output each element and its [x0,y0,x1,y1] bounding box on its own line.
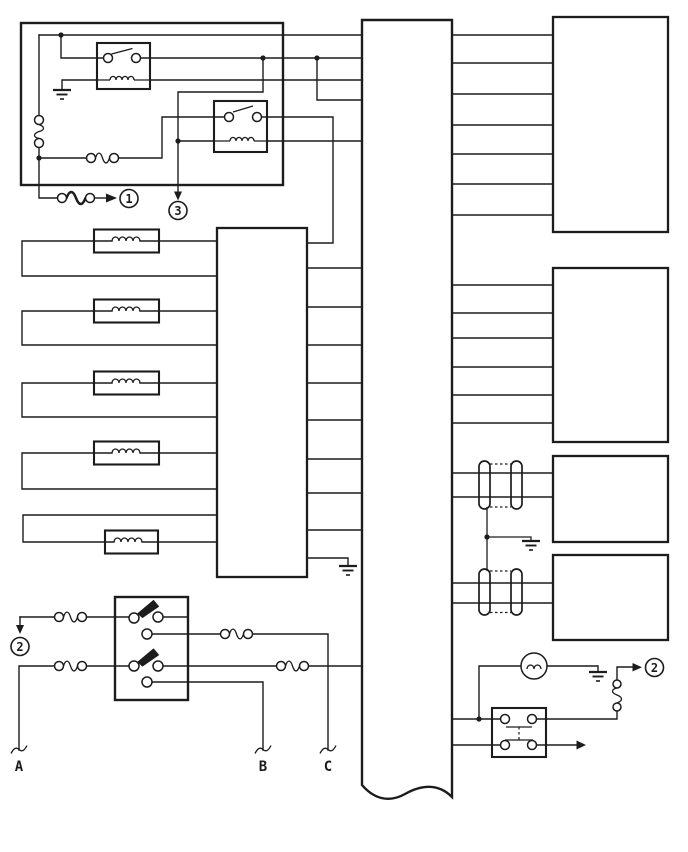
junction-dot [484,534,489,539]
connector-box-4 [553,555,668,640]
wire-fuse-to-relay2 [119,117,225,158]
relay-2-coil [230,137,254,141]
connector-box-2 [553,268,668,442]
ground-symbol-ecm [339,566,357,575]
connector-pin [501,715,510,724]
wire-relay1-coil-ground [62,80,97,90]
coil-winding [112,237,140,241]
ecm-to-harness-wires [307,268,362,530]
ground-symbol-lamp [589,672,607,681]
bar-to-box2-wires [452,285,553,423]
connector-box-1 [553,17,668,232]
switch-contact [142,629,152,639]
wire-relay2-output [262,117,334,243]
junction-dot [260,55,265,60]
ecm-box [217,228,307,577]
switch-contact [142,677,152,687]
terminal-label-c: C [324,759,332,775]
ref-2-left-badge: 2 [11,638,29,656]
relay-1-coil [110,76,134,80]
relay-1-contact [104,54,113,63]
ignition-coil-row-1 [22,230,217,277]
terminal-label-a: A [15,759,24,775]
shielded-cable-section [452,461,553,615]
wire-to-fusible-link-1 [39,148,58,199]
wire-branch-to-bar [317,58,362,100]
arrow-right-icon [633,663,643,672]
shield-capsule [511,461,522,509]
ignition-coil-row-4 [22,442,217,490]
relay-1-box [97,43,150,89]
ignition-coil-row-3 [22,372,217,418]
fusible-link-ref2 [613,680,622,711]
fuse-row3-right [277,661,309,671]
coil-winding [112,379,140,383]
diagnostic-section: 2 [452,653,664,757]
wiring-diagram-page: 1 3 [0,0,688,852]
relay-2-contact-blade [233,106,253,112]
junction-dot [36,155,41,160]
ecm-ground-wire [307,558,348,566]
wire-row4-to-b [152,682,263,750]
ref-2-right-label: 2 [651,661,658,675]
fusible-link-ref1 [58,192,118,204]
ref-2-right-badge: 2 [646,659,664,677]
arrow-right-icon [106,194,117,203]
relay-section: 1 3 [21,23,362,243]
terminal-label-b: B [259,759,267,775]
fuse-row3 [55,661,87,671]
connector-pin [528,741,537,750]
switch-contact [129,613,139,623]
junction-dot [58,32,63,37]
fuse-row1 [55,612,87,622]
relay-2 [214,101,267,152]
connector-pin [501,741,510,750]
ground-symbol-shield [522,541,540,550]
fuse-row2 [221,629,253,639]
ignition-coil-row-5 [23,515,217,554]
shield-capsule [479,461,490,509]
relay-2-box [214,101,267,152]
shield-capsule [479,569,490,615]
ignition-switch-wires [19,617,362,750]
relay-2-contact [225,113,234,122]
indicator-lamp [521,653,547,679]
fusible-link-vertical [35,116,44,148]
arrow-right-icon [577,741,587,750]
wire-row2-to-c [152,634,328,750]
relay-1-contact-blade [112,49,133,55]
junction-dot [314,55,319,60]
wire-row3-left-to-a [19,666,129,750]
relay-2-contact [253,113,262,122]
switch-contact [153,612,163,622]
ref-3-label: 3 [174,204,181,218]
wire-branch-ref3 [178,58,263,193]
ref-1-badge: 1 [120,190,138,208]
shield-capsule [511,569,522,615]
shield-dotted-lines [490,464,511,613]
coil-winding [114,538,142,542]
connector-box-3 [553,456,668,542]
shielded-pair-2-wires [452,583,553,603]
arrow-down-icon [16,625,24,634]
ignition-coil-row-2 [22,300,217,346]
connector-pin [528,715,537,724]
switch-contact [153,661,163,671]
ignition-switch-section: 2 A B C [11,597,362,775]
right-connector-section [452,17,668,640]
ref-3-badge: 3 [169,202,187,220]
switch-contact [129,661,139,671]
junction-dot [476,716,481,721]
ecm-section [217,228,362,577]
relay-1-contact [132,54,141,63]
bar-to-box1-wires [452,35,553,215]
wiring-diagram-canvas: 1 3 [0,0,688,852]
relay-1 [97,43,150,89]
ref-1-label: 1 [125,192,132,206]
junction-dot [175,138,180,143]
ground-symbol-relay1 [53,90,71,99]
coil-winding [112,307,140,311]
relay-section-wires [39,35,362,243]
coil-winding [112,449,140,453]
ignition-coil-section [22,230,217,554]
shielded-pair-1-wires [452,473,553,497]
arrow-down-icon [174,192,182,201]
harness-connector-bar [362,20,452,799]
fuse-relay2-feed [87,153,119,163]
ref-2-left-label: 2 [16,640,23,654]
